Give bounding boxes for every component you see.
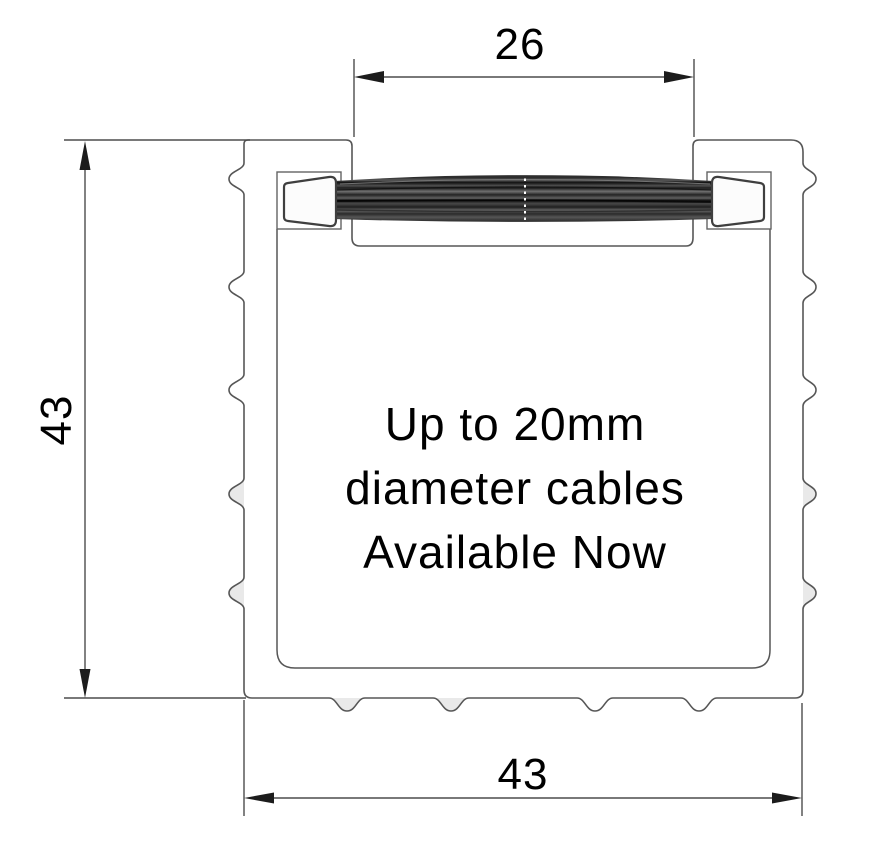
arrowhead-right [772, 793, 802, 804]
brush-ferrule-right [712, 177, 764, 226]
dimension-label-top-width: 26 [460, 22, 580, 68]
note-line-3: Available Now [265, 520, 765, 584]
note-line-2: diameter cables [265, 456, 765, 520]
note-line-1: Up to 20mm [265, 392, 765, 456]
arrowhead-left [244, 793, 274, 804]
brush-ferrule-left [284, 177, 336, 226]
dimension-top-width [354, 59, 694, 137]
arrowhead-right [664, 71, 694, 83]
brush-bristles [334, 172, 714, 222]
arrowhead-down [80, 669, 91, 698]
arrowhead-left [354, 71, 384, 83]
arrowhead-up [80, 141, 91, 170]
dimension-label-bottom-width: 43 [463, 752, 583, 798]
dimension-label-left-height: 43 [34, 360, 80, 480]
availability-note: Up to 20mm diameter cables Available Now [265, 392, 765, 584]
dimension-left-height [64, 140, 250, 698]
drawing-canvas: 26 43 43 Up to 20mm diameter cables Avai… [0, 0, 878, 864]
